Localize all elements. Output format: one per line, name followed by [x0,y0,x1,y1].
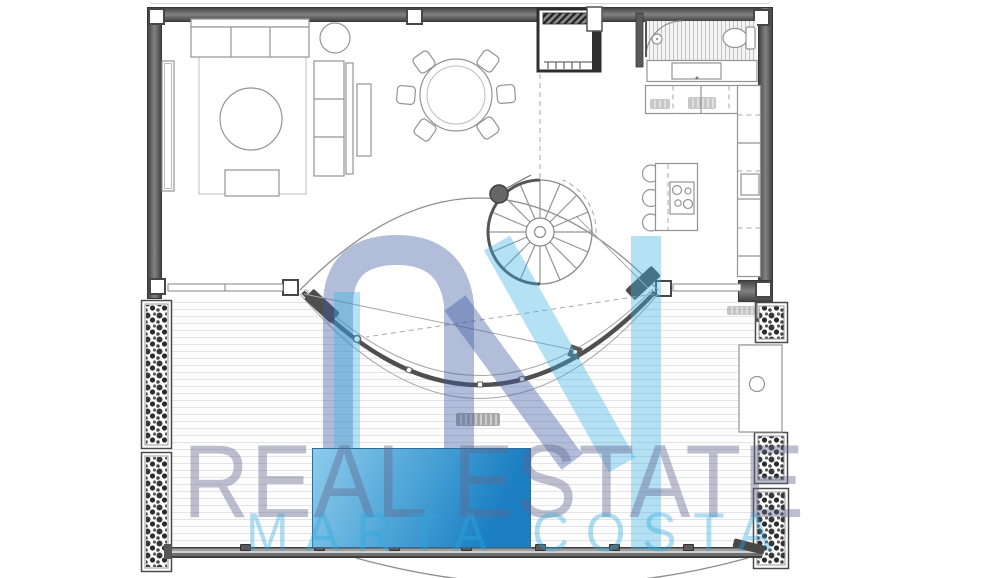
partition-wall [636,13,643,67]
wall-right [759,8,772,302]
wall-left [148,8,161,298]
column-post [753,9,770,26]
column-post [149,278,166,295]
living-room-furniture [162,19,371,196]
stool [643,214,660,231]
tiny-annotation [688,97,716,109]
railing-end-cap [164,544,172,559]
vanity [647,61,757,82]
wall-top [148,8,772,21]
stool [643,165,660,182]
sink [672,63,721,79]
column-post [406,8,423,25]
floor-plan-canvas: REAL ESTATE MARTA COSTA [0,0,1000,578]
toilet [723,29,747,48]
tiny-annotation [650,99,670,109]
cooktop [670,182,694,214]
watermark-line2: MARTA COSTA [246,505,788,560]
stool [643,190,660,207]
column-post [655,280,672,297]
tiny-annotation [727,306,755,315]
stair-newel [490,185,508,203]
spiral-staircase [488,175,592,284]
column-post [148,8,165,25]
roof-overhang-line [150,3,770,4]
column-post [755,281,772,298]
bathroom [646,21,757,82]
kitchen-island [656,164,698,231]
column-post [282,279,299,296]
door-swing [646,21,682,57]
kitchen [643,86,761,277]
dining-set [396,48,516,142]
